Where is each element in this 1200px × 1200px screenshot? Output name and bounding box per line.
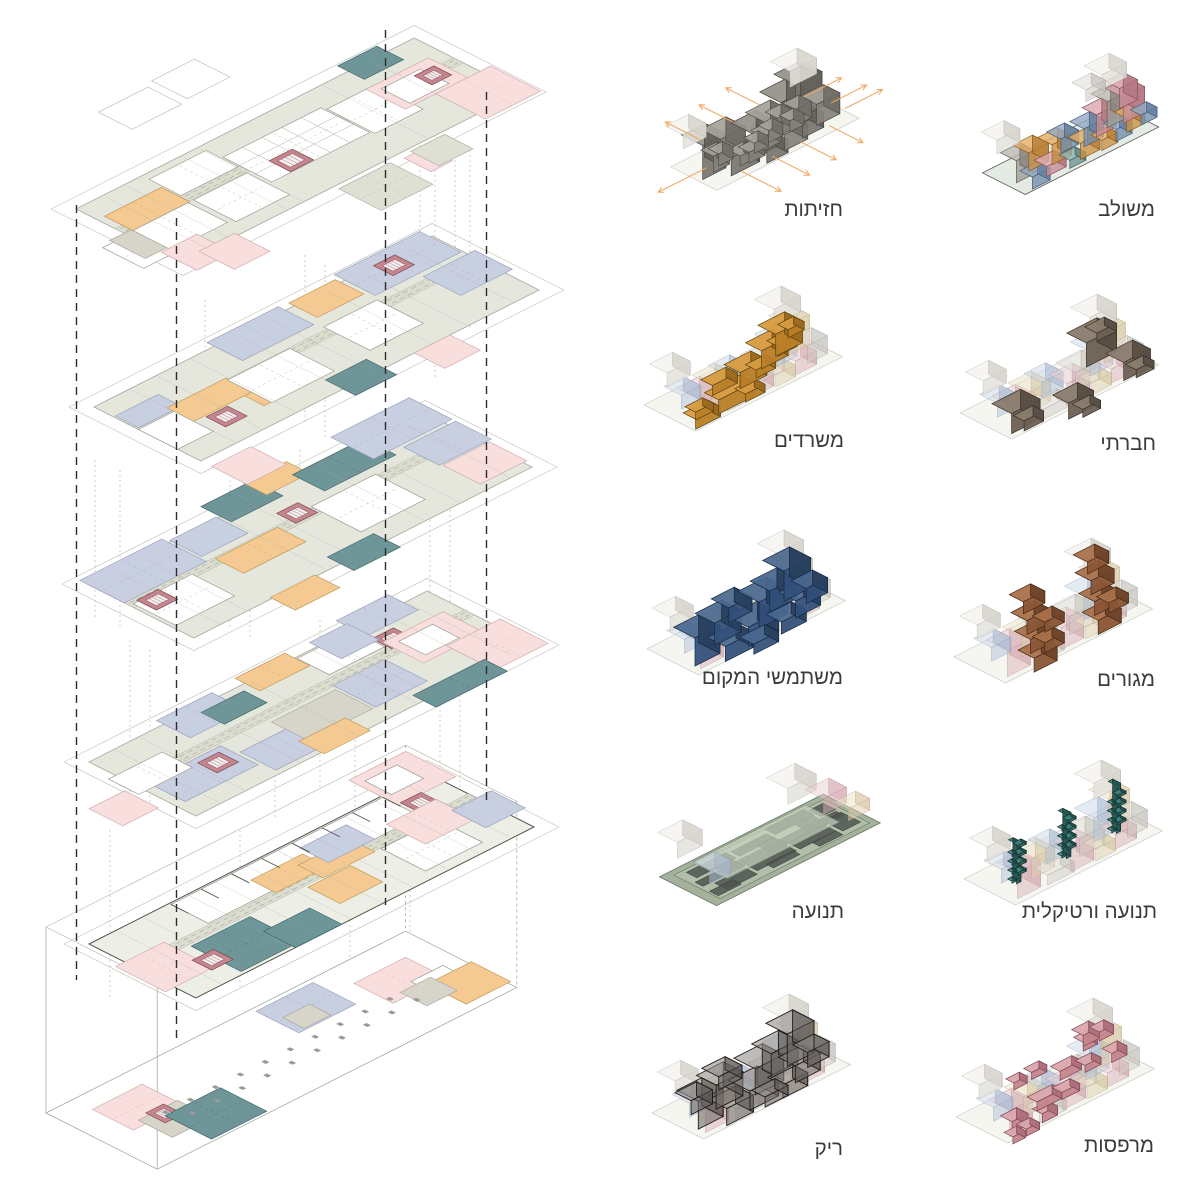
svg-text:תנועה: תנועה (792, 900, 844, 923)
svg-text:משתמשי המקום: משתמשי המקום (702, 666, 843, 689)
svg-text:משרדים: משרדים (774, 429, 844, 452)
svg-text:חברתי: חברתי (1100, 432, 1156, 455)
svg-text:מרפסות: מרפסות (1084, 1134, 1154, 1157)
svg-text:תנועה ורטיקלית: תנועה ורטיקלית (1022, 900, 1157, 923)
svg-text:משולב: משולב (1098, 198, 1155, 221)
svg-text:ריק: ריק (815, 1137, 843, 1160)
svg-text:חזיתות: חזיתות (784, 198, 843, 221)
svg-text:מגורים: מגורים (1097, 668, 1155, 691)
